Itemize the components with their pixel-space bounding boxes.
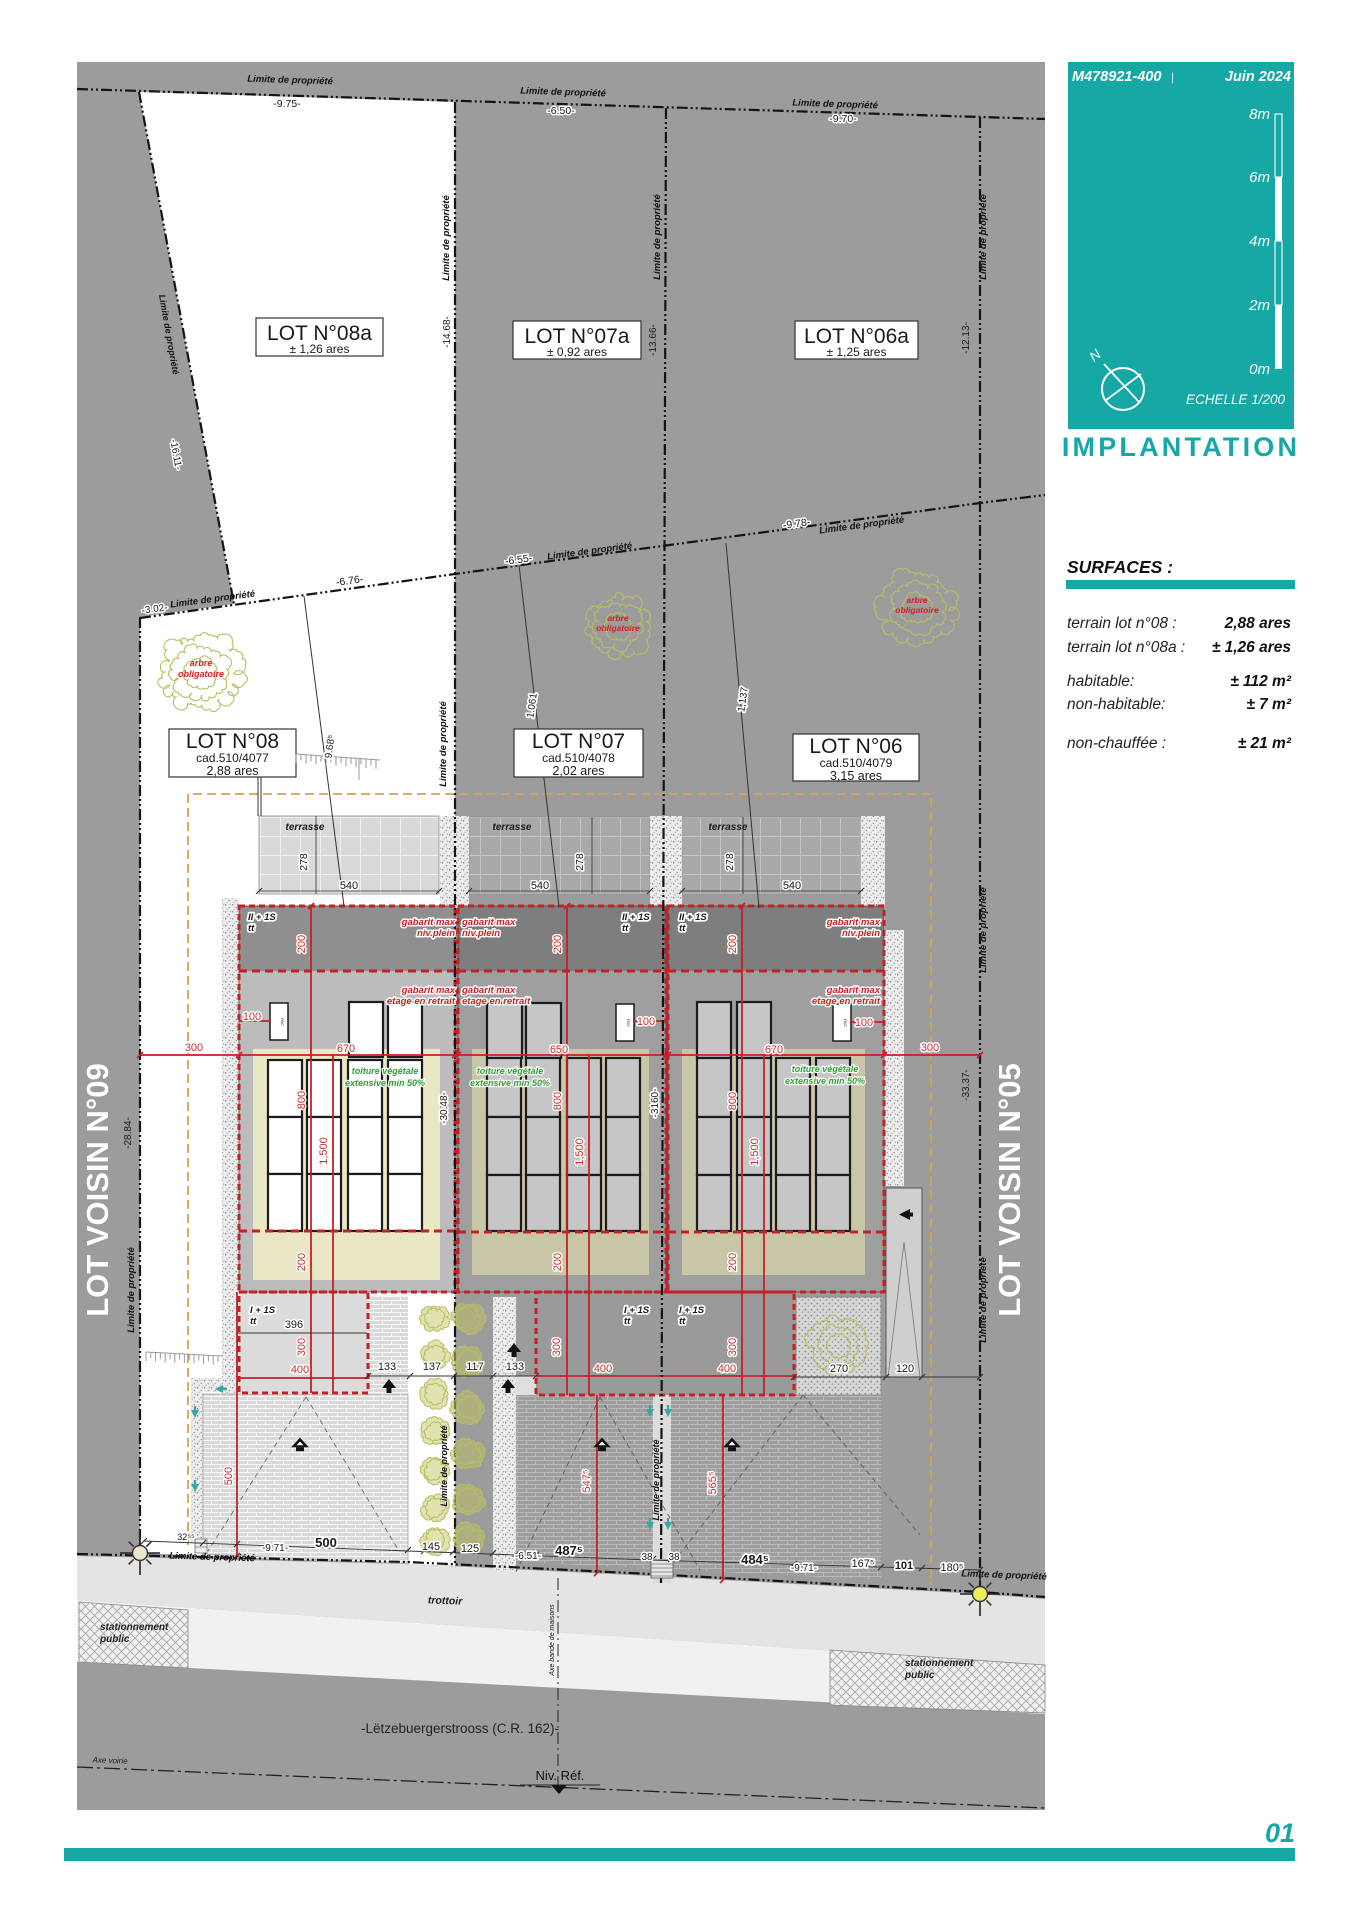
svg-text:toiture végétale: toiture végétale	[792, 1064, 859, 1074]
svg-text:Limite de propriété: Limite de propriété	[126, 1247, 137, 1333]
svg-text:± 0,92 ares: ± 0,92 ares	[547, 345, 607, 359]
svg-text:-28.84-: -28.84-	[123, 1117, 134, 1149]
svg-text:tt: tt	[624, 1316, 631, 1327]
svg-text:± 112 m²: ± 112 m²	[1230, 673, 1292, 690]
svg-text:200: 200	[296, 1253, 308, 1271]
svg-text:Limite de propriété: Limite de propriété	[438, 701, 449, 787]
svg-text:200: 200	[727, 935, 739, 953]
svg-text:terrasse: terrasse	[286, 822, 325, 833]
svg-text:habitable:: habitable:	[1067, 673, 1134, 690]
svg-text:PAC: PAC	[280, 1018, 285, 1026]
svg-text:etage en retrait: etage en retrait	[387, 996, 456, 1007]
svg-text:500: 500	[223, 1467, 235, 1485]
svg-text:540: 540	[783, 880, 801, 892]
svg-text:Niv. Réf.: Niv. Réf.	[536, 1768, 585, 1783]
svg-text:-6.51-: -6.51-	[515, 1551, 541, 1562]
svg-text:300: 300	[921, 1042, 939, 1054]
svg-text:LOT N°08: LOT N°08	[186, 730, 279, 753]
svg-text:-13.66-: -13.66-	[648, 324, 659, 356]
svg-text:terrasse: terrasse	[493, 822, 532, 833]
svg-text:toiture végétale: toiture végétale	[352, 1066, 419, 1076]
svg-text:800: 800	[552, 1092, 564, 1110]
svg-text:non-chauffée :: non-chauffée :	[1067, 735, 1166, 752]
svg-text:270: 270	[830, 1363, 848, 1375]
svg-text:800: 800	[296, 1091, 308, 1109]
svg-text:tt: tt	[622, 923, 629, 934]
svg-text:-9.75-: -9.75-	[273, 98, 301, 110]
svg-text:non-habitable:: non-habitable:	[1067, 696, 1165, 713]
svg-text:cad.510/4079: cad.510/4079	[820, 756, 893, 770]
svg-text:6m: 6m	[1249, 169, 1270, 186]
svg-text:278: 278	[574, 853, 586, 871]
svg-text:extensive min 50%: extensive min 50%	[345, 1078, 425, 1088]
svg-text:200: 200	[727, 1253, 739, 1271]
svg-text:2,88 ares: 2,88 ares	[1224, 615, 1292, 632]
svg-text:-9.70-: -9.70-	[829, 113, 857, 125]
svg-text:tt: tt	[679, 923, 686, 934]
svg-text:extensive min 50%: extensive min 50%	[785, 1076, 865, 1086]
svg-text:300: 300	[551, 1338, 563, 1356]
svg-text:200: 200	[552, 935, 564, 953]
svg-text:I + 1S: I + 1S	[624, 1305, 650, 1316]
svg-text:1,500: 1,500	[574, 1138, 586, 1166]
svg-text:125: 125	[461, 1543, 479, 1555]
svg-text:obligatoire: obligatoire	[895, 605, 939, 615]
svg-text:± 1,25 ares: ± 1,25 ares	[827, 345, 887, 359]
svg-text:tt: tt	[250, 1316, 257, 1327]
svg-text:540: 540	[340, 880, 358, 892]
svg-text:0m: 0m	[1249, 361, 1270, 378]
svg-text:800: 800	[727, 1092, 739, 1110]
svg-text:PAC: PAC	[626, 1019, 631, 1027]
svg-text:|: |	[1171, 70, 1174, 84]
svg-text:547⁵: 547⁵	[581, 1470, 593, 1493]
svg-text:100: 100	[243, 1011, 261, 1023]
svg-text:stationnement: stationnement	[100, 1622, 169, 1633]
svg-text:-6.50-: -6.50-	[547, 105, 575, 117]
svg-text:120: 120	[896, 1363, 914, 1375]
svg-text:101: 101	[895, 1560, 913, 1572]
svg-text:2,02 ares: 2,02 ares	[552, 764, 604, 778]
svg-text:4m: 4m	[1249, 233, 1270, 250]
svg-text:Limite de propriété: Limite de propriété	[441, 195, 452, 281]
svg-text:Limite de propriété: Limite de propriété	[978, 1257, 989, 1343]
svg-text:extensive min 50%: extensive min 50%	[470, 1078, 550, 1088]
svg-text:400: 400	[291, 1364, 309, 1376]
svg-text:-33.37-: -33.37-	[961, 1069, 972, 1101]
svg-text:484⁵: 484⁵	[741, 1552, 769, 1567]
svg-text:SURFACES :: SURFACES :	[1067, 557, 1173, 577]
svg-text:IMPLANTATION: IMPLANTATION	[1062, 432, 1300, 462]
svg-text:278: 278	[298, 853, 310, 871]
svg-text:500: 500	[315, 1535, 337, 1550]
svg-text:Limite de propriété: Limite de propriété	[652, 194, 663, 280]
svg-text:stationnement: stationnement	[905, 1658, 974, 1669]
svg-text:2m: 2m	[1248, 297, 1270, 314]
svg-text:LOT N°06: LOT N°06	[809, 735, 902, 758]
svg-text:8m: 8m	[1249, 106, 1270, 123]
svg-text:117: 117	[466, 1361, 484, 1373]
svg-text:650: 650	[550, 1044, 568, 1056]
svg-text:200: 200	[296, 935, 308, 953]
svg-text:± 7 m²: ± 7 m²	[1246, 696, 1292, 713]
svg-text:1,500: 1,500	[318, 1137, 330, 1165]
svg-text:LOT VOISIN N°05: LOT VOISIN N°05	[992, 1063, 1027, 1317]
svg-text:tt: tt	[679, 1316, 686, 1327]
svg-text:400: 400	[718, 1363, 736, 1375]
svg-text:-Lëtzebuergerstrooss (C.R. 162: -Lëtzebuergerstrooss (C.R. 162)-	[361, 1721, 559, 1736]
svg-text:± 1,26 ares: ± 1,26 ares	[1212, 639, 1292, 656]
svg-text:gabarit max: gabarit max	[826, 985, 881, 996]
svg-text:01: 01	[1265, 1818, 1295, 1848]
svg-text:100: 100	[855, 1017, 873, 1029]
svg-text:Juin 2024: Juin 2024	[1225, 69, 1291, 85]
svg-text:obligatoire: obligatoire	[178, 669, 224, 679]
svg-text:Limite de propriété: Limite de propriété	[978, 887, 989, 973]
svg-text:2,88 ares: 2,88 ares	[206, 764, 258, 778]
svg-text:670: 670	[337, 1043, 355, 1055]
svg-text:540: 540	[531, 880, 549, 892]
svg-text:-9.71-: -9.71-	[791, 1563, 817, 1574]
svg-text:M478921-400: M478921-400	[1072, 69, 1162, 85]
svg-text:-9.71-: -9.71-	[262, 1543, 288, 1554]
svg-text:gabarit max: gabarit max	[461, 985, 516, 996]
svg-text:137: 137	[423, 1361, 441, 1373]
svg-text:Axe bande de maisons: Axe bande de maisons	[549, 1604, 556, 1677]
svg-text:gabarit max: gabarit max	[401, 985, 456, 996]
svg-text:arbre: arbre	[190, 658, 213, 668]
svg-text:300: 300	[296, 1338, 308, 1356]
svg-text:± 21 m²: ± 21 m²	[1238, 735, 1292, 752]
svg-text:niv.plein: niv.plein	[842, 928, 880, 939]
svg-text:LOT N°07: LOT N°07	[532, 730, 625, 753]
svg-text:± 1,26 ares: ± 1,26 ares	[290, 342, 350, 356]
svg-text:II + 1S: II + 1S	[679, 912, 707, 923]
svg-text:38: 38	[641, 1552, 653, 1563]
svg-text:gabarit max: gabarit max	[826, 917, 881, 928]
svg-text:Axe voirie: Axe voirie	[91, 1755, 128, 1765]
svg-text:terrain lot n°08a :: terrain lot n°08a :	[1067, 639, 1185, 656]
svg-text:niv.plein: niv.plein	[417, 928, 455, 939]
svg-text:100: 100	[637, 1016, 655, 1028]
svg-text:PAC: PAC	[843, 1019, 848, 1027]
svg-text:133: 133	[378, 1361, 396, 1373]
svg-text:400: 400	[594, 1363, 612, 1375]
svg-text:II + 1S: II + 1S	[622, 912, 650, 923]
svg-text:670: 670	[765, 1044, 783, 1056]
svg-text:arbre: arbre	[607, 613, 629, 623]
svg-text:public: public	[99, 1634, 130, 1645]
svg-text:300: 300	[727, 1338, 739, 1356]
svg-text:565⁵: 565⁵	[707, 1472, 719, 1495]
svg-text:Limite de propriété: Limite de propriété	[651, 1439, 661, 1520]
svg-text:-3160-: -3160-	[650, 1089, 661, 1118]
svg-text:etage en retrait: etage en retrait	[812, 996, 881, 1007]
svg-text:3,15 ares: 3,15 ares	[830, 769, 882, 783]
svg-text:38: 38	[668, 1552, 680, 1563]
svg-text:trottoir: trottoir	[428, 1594, 464, 1607]
svg-text:200: 200	[552, 1253, 564, 1271]
svg-text:167⁵: 167⁵	[852, 1558, 875, 1570]
svg-text:LOT VOISIN N°09: LOT VOISIN N°09	[80, 1063, 115, 1317]
svg-text:arbre: arbre	[906, 595, 928, 605]
svg-text:145: 145	[422, 1541, 440, 1553]
svg-text:-14.68-: -14.68-	[442, 316, 453, 348]
svg-text:niv.plein: niv.plein	[462, 928, 500, 939]
svg-text:gabarit max: gabarit max	[461, 917, 516, 928]
svg-text:etage en retrait: etage en retrait	[462, 996, 531, 1007]
svg-text:278: 278	[724, 853, 736, 871]
svg-text:-12.13-: -12.13-	[961, 322, 972, 354]
svg-text:133: 133	[506, 1361, 524, 1373]
svg-text:487⁵: 487⁵	[555, 1543, 583, 1558]
svg-text:Limite de propriété: Limite de propriété	[439, 1425, 449, 1506]
svg-text:Limite de propriété: Limite de propriété	[978, 194, 989, 280]
svg-text:ECHELLE 1/200: ECHELLE 1/200	[1186, 392, 1286, 407]
svg-text:396: 396	[285, 1319, 303, 1331]
svg-text:I + 1S: I + 1S	[679, 1305, 705, 1316]
svg-text:cad.510/4078: cad.510/4078	[542, 751, 615, 765]
svg-text:terrain lot n°08 :: terrain lot n°08 :	[1067, 615, 1177, 632]
svg-text:-30.48-: -30.48-	[439, 1092, 450, 1124]
svg-text:180⁵: 180⁵	[941, 1562, 964, 1574]
svg-text:II + 1S: II + 1S	[248, 912, 276, 923]
svg-text:32⁵⁵: 32⁵⁵	[177, 1532, 195, 1542]
svg-text:tt: tt	[248, 923, 255, 934]
svg-text:gabarit max: gabarit max	[401, 917, 456, 928]
svg-text:toiture végétale: toiture végétale	[477, 1066, 544, 1076]
svg-text:300: 300	[185, 1042, 203, 1054]
svg-text:obligatoire: obligatoire	[596, 623, 640, 633]
svg-text:cad.510/4077: cad.510/4077	[196, 751, 269, 765]
svg-text:1,500: 1,500	[749, 1138, 761, 1166]
svg-text:I + 1S: I + 1S	[250, 1305, 276, 1316]
svg-text:terrasse: terrasse	[709, 822, 748, 833]
svg-text:public: public	[904, 1670, 935, 1681]
